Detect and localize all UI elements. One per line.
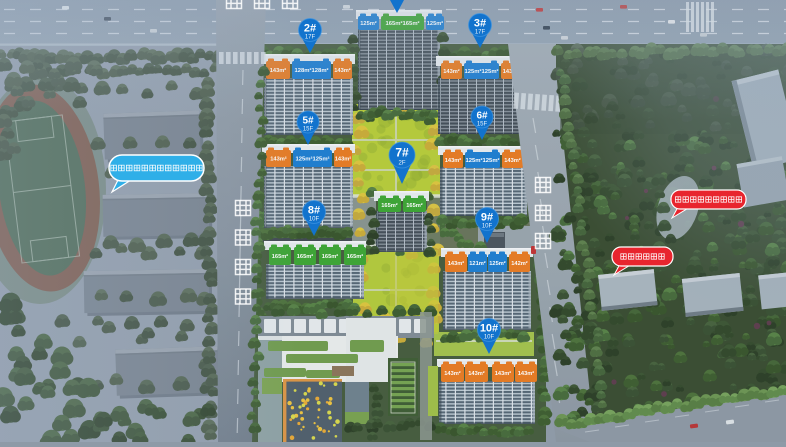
svg-text:9#: 9# xyxy=(481,212,493,224)
svg-text:17F: 17F xyxy=(475,30,486,36)
svg-text:6#: 6# xyxy=(476,111,488,122)
svg-text:2#: 2# xyxy=(304,23,316,35)
svg-text:2F: 2F xyxy=(398,161,405,167)
svg-text:15F: 15F xyxy=(303,126,314,132)
svg-text:10F: 10F xyxy=(482,224,493,230)
svg-text:15F: 15F xyxy=(477,121,488,127)
svg-text:8#: 8# xyxy=(308,205,320,217)
svg-text:10F: 10F xyxy=(309,217,320,223)
svg-text:10#: 10# xyxy=(480,323,498,335)
svg-text:7#: 7# xyxy=(395,146,409,160)
svg-text:5#: 5# xyxy=(302,116,314,127)
svg-text:17F: 17F xyxy=(305,35,316,41)
svg-text:3#: 3# xyxy=(474,18,486,30)
svg-text:10F: 10F xyxy=(484,335,495,341)
